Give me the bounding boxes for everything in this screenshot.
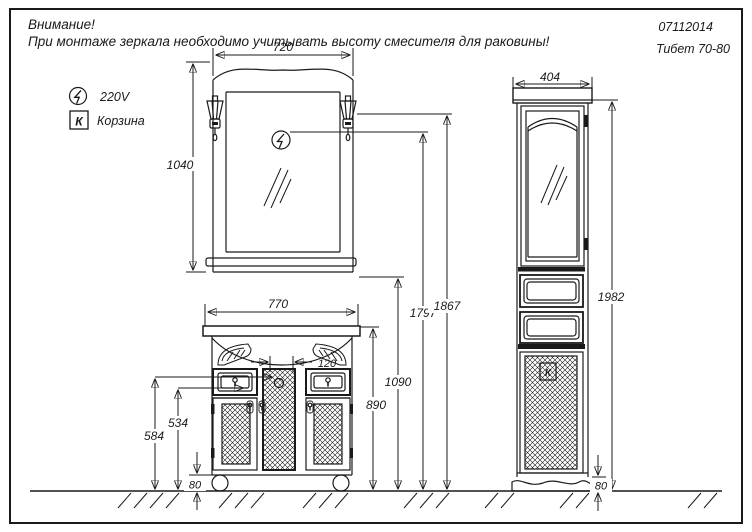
svg-text:404: 404	[540, 70, 560, 84]
keyhole-icon	[233, 378, 237, 387]
cabinet-upper-door	[521, 106, 584, 266]
dim-cabinet-height: 1982	[591, 100, 631, 489]
svg-text:890: 890	[366, 398, 386, 412]
left-lamp-icon	[207, 96, 223, 141]
vanity-leg	[212, 475, 228, 491]
socket-symbol	[272, 131, 290, 149]
header: Внимание! При монтаже зеркала необходимо…	[28, 17, 730, 56]
dim-plinth-height: 80	[590, 455, 612, 511]
left-drawer	[213, 369, 257, 395]
cabinet-drawer-2	[520, 312, 583, 343]
svg-text:80: 80	[595, 481, 608, 493]
cabinet-drawer-1	[520, 275, 583, 307]
vanity-leg	[333, 475, 349, 491]
floor	[30, 491, 722, 508]
dim-socket-height: 1797	[290, 132, 442, 489]
cabinet-cornice	[513, 88, 592, 103]
mirror-pediment	[213, 69, 353, 80]
svg-text:120: 120	[318, 358, 337, 370]
glass-hatch	[541, 165, 567, 205]
dim-leg-height: 80	[184, 452, 212, 510]
warning-title: Внимание!	[28, 17, 95, 32]
svg-text:1040: 1040	[167, 158, 194, 172]
svg-text:720: 720	[273, 40, 293, 54]
ground-hatch	[118, 493, 717, 508]
central-mesh-panel	[263, 369, 295, 470]
basket-symbol: К	[75, 115, 84, 129]
dim-cabinet-width: 404	[513, 70, 592, 90]
vanity-drawing	[203, 326, 360, 491]
basket-label: Корзина	[97, 114, 145, 128]
svg-text:1090: 1090	[385, 375, 412, 389]
mirror-shelf	[206, 258, 356, 266]
svg-text:80: 80	[189, 480, 202, 492]
page-border	[10, 9, 742, 523]
cabinet-lower-door: К	[520, 352, 583, 473]
technical-drawing: Внимание! При монтаже зеркала необходимо…	[0, 0, 752, 532]
mirror-glass-hatch	[264, 168, 291, 208]
svg-text:534: 534	[168, 416, 188, 430]
dim-vanity-width: 770	[205, 297, 358, 326]
mirror-drawing	[206, 69, 356, 272]
right-drawer	[306, 369, 350, 395]
svg-text:770: 770	[268, 297, 288, 311]
tall-cabinet-drawing: К	[512, 88, 592, 491]
power-circle-icon	[70, 88, 87, 105]
lightning-icon	[75, 91, 81, 104]
lightning-icon	[278, 134, 285, 148]
dim-mirror-height: 1040	[163, 62, 210, 272]
keyhole-icon	[326, 378, 330, 387]
countertop	[203, 326, 360, 336]
doc-number: 07112014	[658, 20, 713, 34]
dim-drawer-top-height: 584	[138, 377, 272, 489]
legend: 220V К Корзина	[70, 88, 145, 130]
keyhole-icon	[307, 401, 313, 413]
svg-text:584: 584	[144, 429, 164, 443]
svg-text:1982: 1982	[598, 290, 625, 304]
power-label: 220V	[99, 90, 131, 104]
model-name: Тибет 70-80	[656, 42, 730, 56]
cabinet-plinth	[512, 481, 591, 491]
basket-marker: К	[545, 368, 552, 379]
drawing-page: Внимание! При монтаже зеркала необходимо…	[0, 0, 752, 532]
svg-text:1867: 1867	[434, 299, 462, 313]
dim-countertop-height: 890	[360, 327, 392, 489]
